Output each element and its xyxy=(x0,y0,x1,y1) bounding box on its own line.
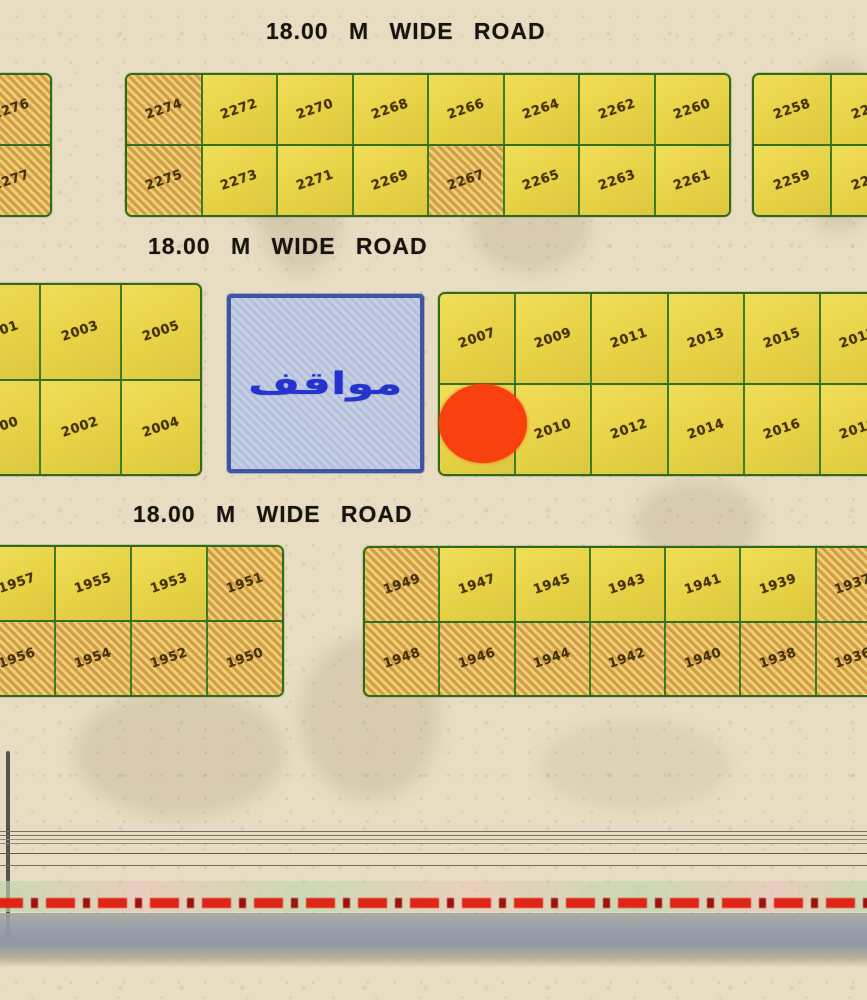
plot-1956: 1956 xyxy=(0,622,54,695)
plot-row: 22752273227122692267226522632261 xyxy=(127,144,729,215)
plot-2004: 2004 xyxy=(120,381,200,475)
plot-number: 2005 xyxy=(140,318,181,345)
parking-label: مواقف xyxy=(248,366,402,402)
plot-number: 2264 xyxy=(521,96,562,123)
plot-2273: 2273 xyxy=(201,146,277,215)
plot-number: 2014 xyxy=(685,416,726,443)
plot-number: 1940 xyxy=(682,645,723,672)
plot-number: 2259 xyxy=(772,167,813,194)
plot-2014: 2014 xyxy=(667,385,743,474)
plot-2009: 2009 xyxy=(514,294,590,383)
road-edge-line xyxy=(0,839,867,840)
plot-number: 2258 xyxy=(772,96,813,123)
plot-2275: 2275 xyxy=(127,146,201,215)
plot-2017: 2017 xyxy=(819,294,867,383)
plot-1939: 1939 xyxy=(739,548,814,621)
plot-number: 2267 xyxy=(445,167,486,194)
plot-number: 1943 xyxy=(607,571,648,598)
plot-number: 2017 xyxy=(837,325,867,352)
plot-2270: 2270 xyxy=(276,75,352,144)
plot-number: 2011 xyxy=(609,325,650,352)
plot-number: 2265 xyxy=(521,167,562,194)
plot-number: 2276 xyxy=(0,96,31,123)
plot-number: 1953 xyxy=(149,570,190,597)
paved-road-band xyxy=(0,913,867,966)
plot-1944: 1944 xyxy=(514,623,589,696)
plot-number: 1942 xyxy=(607,645,648,672)
plot-row: 200020022004 xyxy=(0,379,200,475)
road-label-middle: 18.00 M WIDE ROAD xyxy=(148,233,428,260)
plot-number: 1952 xyxy=(149,645,190,672)
plot-2272: 2272 xyxy=(201,75,277,144)
plot-1957: 1957 xyxy=(0,547,54,620)
plot-row: 22742272227022682266226422622260 xyxy=(127,75,729,144)
plot-number: 2263 xyxy=(596,167,637,194)
plot-2000: 2000 xyxy=(0,381,39,475)
plot-2276: 2276 xyxy=(0,75,50,144)
road-edge-line xyxy=(0,831,867,832)
plot-2007: 2007 xyxy=(440,294,514,383)
plot-1953: 1953 xyxy=(130,547,206,620)
plot-1955: 1955 xyxy=(54,547,130,620)
plot-number: 1949 xyxy=(381,571,422,598)
plot-2265: 2265 xyxy=(503,146,579,215)
plot-2277: 2277 xyxy=(0,146,50,215)
plot-number: 2277 xyxy=(0,167,31,194)
plot-row: 22592257 xyxy=(754,144,867,215)
plot-number: 2003 xyxy=(60,318,101,345)
plot-number: 2018 xyxy=(837,416,867,443)
plot-block-top-left-edge: 22762277 xyxy=(0,73,52,217)
plot-number: 1946 xyxy=(456,645,497,672)
plot-row: 1948194619441942194019381936 xyxy=(365,621,867,696)
plot-row: 200120032005 xyxy=(0,285,200,379)
plot-number: 1950 xyxy=(225,645,266,672)
plot-number: 2261 xyxy=(672,167,713,194)
plot-2260: 2260 xyxy=(654,75,730,144)
plot-number: 2271 xyxy=(294,167,335,194)
road-edge-line xyxy=(0,843,867,844)
plot-1942: 1942 xyxy=(589,623,664,696)
plot-number: 1956 xyxy=(0,645,37,672)
plot-number: 2274 xyxy=(143,96,184,123)
plot-number: 2010 xyxy=(533,416,574,443)
plot-number: 2260 xyxy=(672,96,713,123)
plot-2005: 2005 xyxy=(120,285,200,379)
plot-block-mid-left: 200120032005200020022004 xyxy=(0,283,202,476)
plot-number: 2257 xyxy=(850,167,867,194)
plot-2002: 2002 xyxy=(39,381,119,475)
plot-2274: 2274 xyxy=(127,75,201,144)
plot-number: 2009 xyxy=(533,325,574,352)
plot-2271: 2271 xyxy=(276,146,352,215)
plot-2266: 2266 xyxy=(427,75,503,144)
plot-1947: 1947 xyxy=(438,548,513,621)
plot-row: 200720092011201320152017 xyxy=(440,294,867,383)
plot-block-top-right-edge: 2258225622592257 xyxy=(752,73,867,217)
plot-2268: 2268 xyxy=(352,75,428,144)
plot-number: 1936 xyxy=(833,645,867,672)
plot-block-top-main: 2274227222702268226622642262226022752273… xyxy=(125,73,731,217)
plot-number: 1939 xyxy=(758,571,799,598)
plot-number: 2015 xyxy=(761,325,802,352)
plot-1948: 1948 xyxy=(365,623,438,696)
plot-1952: 1952 xyxy=(130,622,206,695)
plot-number: 2266 xyxy=(445,96,486,123)
plot-1936: 1936 xyxy=(815,623,867,696)
plot-row: 2277 xyxy=(0,144,50,215)
plot-2012: 2012 xyxy=(590,385,666,474)
plot-block-bottom-right: 1949194719451943194119391937194819461944… xyxy=(363,546,867,697)
plot-1938: 1938 xyxy=(739,623,814,696)
plot-2263: 2263 xyxy=(578,146,654,215)
plot-number: 2272 xyxy=(219,96,260,123)
plot-1945: 1945 xyxy=(514,548,589,621)
road-label-top: 18.00 M WIDE ROAD xyxy=(266,18,546,45)
plot-2018: 2018 xyxy=(819,385,867,474)
plot-row: 22582256 xyxy=(754,75,867,144)
plot-2016: 2016 xyxy=(743,385,819,474)
plot-2256: 2256 xyxy=(830,75,867,144)
plot-number: 1957 xyxy=(0,570,37,597)
plot-number: 2268 xyxy=(370,96,411,123)
plot-number: 1947 xyxy=(456,571,497,598)
plot-1943: 1943 xyxy=(589,548,664,621)
plot-block-bottom-left: 19571955195319511956195419521950 xyxy=(0,545,284,697)
plot-2269: 2269 xyxy=(352,146,428,215)
road-edge-line xyxy=(0,835,867,836)
plot-1937: 1937 xyxy=(815,548,867,621)
plot-number: 2013 xyxy=(685,325,726,352)
plot-row: 2276 xyxy=(0,75,50,144)
parking-area: مواقف xyxy=(227,294,424,473)
plot-number: 2007 xyxy=(457,325,498,352)
sand-smudge xyxy=(540,720,730,810)
plot-2262: 2262 xyxy=(578,75,654,144)
plot-2003: 2003 xyxy=(39,285,119,379)
plot-2267: 2267 xyxy=(427,146,503,215)
plot-number: 2000 xyxy=(0,414,21,441)
road-edge-line xyxy=(0,865,867,866)
subdivision-plan-canvas: 18.00 M WIDE ROAD 18.00 M WIDE ROAD 18.0… xyxy=(0,0,867,1000)
plot-row: 1949194719451943194119391937 xyxy=(365,548,867,621)
plot-number: 1951 xyxy=(225,570,266,597)
plot-1941: 1941 xyxy=(664,548,739,621)
plot-2257: 2257 xyxy=(830,146,867,215)
plot-number: 1954 xyxy=(73,645,114,672)
plot-number: 2273 xyxy=(219,167,260,194)
plot-row: 1957195519531951 xyxy=(0,547,282,620)
plot-2001: 2001 xyxy=(0,285,39,379)
plot-1950: 1950 xyxy=(206,622,282,695)
plot-row: 1956195419521950 xyxy=(0,620,282,695)
plot-2015: 2015 xyxy=(743,294,819,383)
plot-number: 1948 xyxy=(381,645,422,672)
plot-number: 2004 xyxy=(140,414,181,441)
road-edge-line xyxy=(0,853,867,854)
plot-2261: 2261 xyxy=(654,146,730,215)
plot-number: 1945 xyxy=(532,571,573,598)
plot-number: 1955 xyxy=(73,570,114,597)
plot-number: 2262 xyxy=(596,96,637,123)
plot-2259: 2259 xyxy=(754,146,830,215)
red-dash-dot-boundary-line xyxy=(0,898,867,908)
plot-1940: 1940 xyxy=(664,623,739,696)
plot-2011: 2011 xyxy=(590,294,666,383)
plot-number: 1944 xyxy=(532,645,573,672)
plot-1946: 1946 xyxy=(438,623,513,696)
plot-number: 2270 xyxy=(294,96,335,123)
plot-number: 1941 xyxy=(682,571,723,598)
plot-1949: 1949 xyxy=(365,548,438,621)
plot-number: 2275 xyxy=(143,167,184,194)
plot-2013: 2013 xyxy=(667,294,743,383)
plot-number: 2269 xyxy=(370,167,411,194)
red-ellipse-marker xyxy=(439,384,527,463)
plot-number: 2001 xyxy=(0,318,21,345)
plot-number: 2256 xyxy=(850,96,867,123)
plot-number: 2012 xyxy=(609,416,650,443)
road-label-bottom: 18.00 M WIDE ROAD xyxy=(133,501,413,528)
plot-number: 1938 xyxy=(758,645,799,672)
plot-1954: 1954 xyxy=(54,622,130,695)
plot-2258: 2258 xyxy=(754,75,830,144)
sand-smudge xyxy=(75,688,285,818)
plot-number: 2016 xyxy=(761,416,802,443)
plot-1951: 1951 xyxy=(206,547,282,620)
plot-number: 1937 xyxy=(833,571,867,598)
plot-number: 2002 xyxy=(60,414,101,441)
plot-2264: 2264 xyxy=(503,75,579,144)
